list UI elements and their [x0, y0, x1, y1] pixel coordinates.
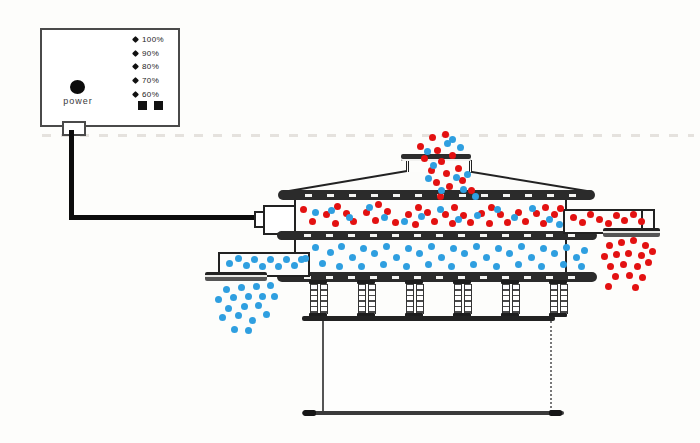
particle-red	[332, 220, 339, 227]
particle-red	[412, 221, 419, 228]
particle-red	[626, 272, 633, 279]
particle-blue	[474, 212, 481, 219]
particle-blue	[241, 303, 248, 310]
particle-red	[375, 201, 382, 208]
particle-blue	[225, 305, 232, 312]
particle-red	[601, 253, 608, 260]
particle-blue	[245, 293, 252, 300]
particle-blue	[393, 254, 400, 261]
particle-blue	[551, 250, 558, 257]
particle-red	[442, 211, 449, 218]
particle-blue	[263, 311, 270, 318]
particle-blue	[243, 262, 250, 269]
particle-red	[649, 248, 656, 255]
particle-red	[442, 131, 449, 138]
particle-blue	[464, 171, 471, 178]
particle-blue	[291, 262, 298, 269]
particle-red	[300, 206, 307, 213]
particle-blue	[438, 187, 445, 194]
particle-blue	[235, 312, 242, 319]
power-level-item: 100%	[133, 33, 164, 47]
particle-red	[434, 147, 441, 154]
particle-red	[417, 143, 424, 150]
particle-red	[542, 204, 549, 211]
particle-red	[557, 205, 564, 212]
level-led-icon	[132, 50, 139, 57]
particle-blue	[494, 206, 501, 213]
particle-blue	[401, 218, 408, 225]
particle-blue	[267, 282, 274, 289]
power-level-label: 80%	[142, 62, 159, 71]
particle-red	[467, 219, 474, 226]
particle-blue	[416, 250, 423, 257]
particle-red	[433, 179, 440, 186]
power-cable-horizontal	[69, 215, 259, 220]
particle-blue	[515, 261, 522, 268]
particle-blue	[472, 193, 479, 200]
undersize-discharge-chute	[205, 272, 267, 281]
spring-coil	[560, 284, 568, 314]
particle-blue	[556, 221, 563, 228]
particle-red	[607, 263, 614, 270]
power-button[interactable]	[70, 80, 85, 94]
particle-blue	[312, 209, 319, 216]
particle-blue	[380, 261, 387, 268]
particle-blue	[430, 162, 437, 169]
spring-coil	[550, 284, 558, 314]
particle-red	[630, 211, 637, 218]
particle-blue	[528, 254, 535, 261]
particle-blue	[518, 243, 525, 250]
particle-blue	[381, 214, 388, 221]
spring-coil	[310, 284, 318, 314]
particle-blue	[223, 286, 230, 293]
particle-red	[459, 177, 466, 184]
panel-cable-stub	[62, 121, 86, 136]
particle-blue	[231, 326, 238, 333]
feed-inlet-cap	[401, 154, 471, 161]
particle-red	[634, 263, 641, 270]
particle-red	[587, 211, 594, 218]
particle-blue	[438, 254, 445, 261]
level-led-icon	[132, 36, 139, 43]
particle-blue	[428, 243, 435, 250]
particle-red	[504, 219, 511, 226]
power-level-indicator-list: 100%90%80%70%60%	[133, 33, 164, 101]
particle-red	[438, 158, 445, 165]
particle-red	[639, 274, 646, 281]
particle-blue	[346, 214, 353, 221]
particle-blue	[238, 284, 245, 291]
particle-blue	[578, 263, 585, 270]
particle-blue	[448, 263, 455, 270]
level-led-icon	[132, 91, 139, 98]
power-level-label: 70%	[142, 76, 159, 85]
particle-blue	[259, 293, 266, 300]
particle-red	[613, 212, 620, 219]
particle-blue	[349, 254, 356, 261]
particle-red	[605, 220, 612, 227]
particle-blue	[259, 263, 266, 270]
power-level-label: 100%	[142, 35, 164, 44]
particle-blue	[538, 263, 545, 270]
level-led-icon	[132, 63, 139, 70]
particle-blue	[453, 174, 460, 181]
particle-red	[415, 204, 422, 211]
decrease-square-button[interactable]	[138, 101, 147, 110]
particle-red	[645, 259, 652, 266]
particle-blue	[460, 186, 467, 193]
spring-coil	[358, 284, 366, 314]
power-level-label: 60%	[142, 90, 159, 99]
power-level-label: 90%	[142, 49, 159, 58]
spring-coil	[512, 284, 520, 314]
particle-blue	[283, 256, 290, 263]
particle-red	[309, 218, 316, 225]
particle-red	[421, 155, 428, 162]
particle-blue	[405, 245, 412, 252]
particle-red	[605, 283, 612, 290]
particle-blue	[444, 140, 451, 147]
particle-blue	[226, 260, 233, 267]
particle-blue	[298, 256, 305, 263]
particle-blue	[338, 243, 345, 250]
power-cable-vertical	[69, 130, 74, 220]
particle-red	[620, 261, 627, 268]
particle-blue	[267, 256, 274, 263]
particle-red	[451, 204, 458, 211]
particle-red	[613, 251, 620, 258]
scan-artifact-line	[42, 134, 694, 137]
base-foot-left	[303, 410, 316, 416]
particle-blue	[275, 263, 282, 270]
particle-red	[630, 237, 637, 244]
particle-blue	[540, 245, 547, 252]
particle-blue	[470, 261, 477, 268]
particle-red	[446, 183, 453, 190]
particle-red	[596, 216, 603, 223]
particle-blue	[560, 261, 567, 268]
control-panel: power 100%90%80%70%60%	[40, 28, 180, 127]
particle-blue	[255, 302, 262, 309]
particle-blue	[461, 250, 468, 257]
particle-red	[334, 203, 341, 210]
spring-coil	[320, 284, 328, 314]
particle-blue	[215, 296, 222, 303]
particle-red	[424, 209, 431, 216]
particle-blue	[457, 144, 464, 151]
middle-clamp-flange	[277, 231, 597, 240]
particle-red	[437, 193, 444, 200]
particle-blue	[573, 254, 580, 261]
spring-coil	[454, 284, 462, 314]
particle-blue	[546, 216, 553, 223]
particle-blue	[319, 260, 326, 267]
particle-blue	[418, 213, 425, 220]
power-level-item: 90%	[133, 47, 164, 61]
base-bottom-flange	[302, 411, 564, 415]
particle-blue	[245, 327, 252, 334]
particle-blue	[366, 204, 373, 211]
particle-red	[372, 217, 379, 224]
particle-blue	[506, 250, 513, 257]
particle-blue	[483, 254, 490, 261]
particle-blue	[271, 293, 278, 300]
power-level-item: 80%	[133, 60, 164, 74]
particle-blue	[249, 317, 256, 324]
particle-red	[486, 220, 493, 227]
particle-blue	[473, 243, 480, 250]
particle-blue	[235, 255, 242, 262]
particle-red	[618, 239, 625, 246]
particle-blue	[403, 263, 410, 270]
particle-blue	[230, 294, 237, 301]
base-cylinder	[322, 321, 552, 412]
particle-blue	[383, 243, 390, 250]
particle-blue	[312, 244, 319, 251]
particle-blue	[425, 175, 432, 182]
level-led-icon	[132, 77, 139, 84]
particle-red	[638, 218, 645, 225]
particle-red	[392, 219, 399, 226]
spring-coil	[416, 284, 424, 314]
particle-red	[570, 214, 577, 221]
particle-red	[642, 242, 649, 249]
spring-coil	[502, 284, 510, 314]
spring-coil	[406, 284, 414, 314]
particle-red	[638, 252, 645, 259]
particle-blue	[251, 256, 258, 263]
particle-blue	[529, 205, 536, 212]
particle-blue	[424, 148, 431, 155]
particle-red	[449, 152, 456, 159]
oversize-discharge-chute	[603, 228, 660, 237]
particle-blue	[563, 244, 570, 251]
power-button-label: power	[54, 96, 102, 106]
particle-blue	[253, 283, 260, 290]
particle-red	[443, 170, 450, 177]
particle-blue	[450, 245, 457, 252]
particle-red	[606, 242, 613, 249]
particle-red	[429, 134, 436, 141]
particle-red	[405, 211, 412, 218]
particle-red	[455, 165, 462, 172]
power-level-item: 60%	[133, 87, 164, 101]
particle-blue	[336, 263, 343, 270]
spring-coil	[464, 284, 472, 314]
vibrating-sieve-diagram: power 100%90%80%70%60%	[0, 0, 700, 443]
particle-blue	[327, 249, 334, 256]
spring-coil	[368, 284, 376, 314]
particle-blue	[581, 247, 588, 254]
particle-blue	[328, 207, 335, 214]
particle-red	[621, 217, 628, 224]
power-level-item: 70%	[133, 74, 164, 88]
particle-red	[625, 250, 632, 257]
particle-red	[632, 284, 639, 291]
particle-red	[522, 218, 529, 225]
particle-blue	[493, 263, 500, 270]
particle-blue	[511, 214, 518, 221]
particle-blue	[495, 245, 502, 252]
particle-red	[612, 273, 619, 280]
particle-blue	[358, 263, 365, 270]
particle-blue	[425, 261, 432, 268]
particle-red	[431, 218, 438, 225]
increase-square-button[interactable]	[154, 101, 163, 110]
particle-blue	[219, 314, 226, 321]
particle-blue	[437, 206, 444, 213]
particle-red	[579, 219, 586, 226]
particle-blue	[371, 250, 378, 257]
particle-blue	[455, 216, 462, 223]
base-foot-right	[549, 410, 562, 416]
particle-blue	[360, 245, 367, 252]
